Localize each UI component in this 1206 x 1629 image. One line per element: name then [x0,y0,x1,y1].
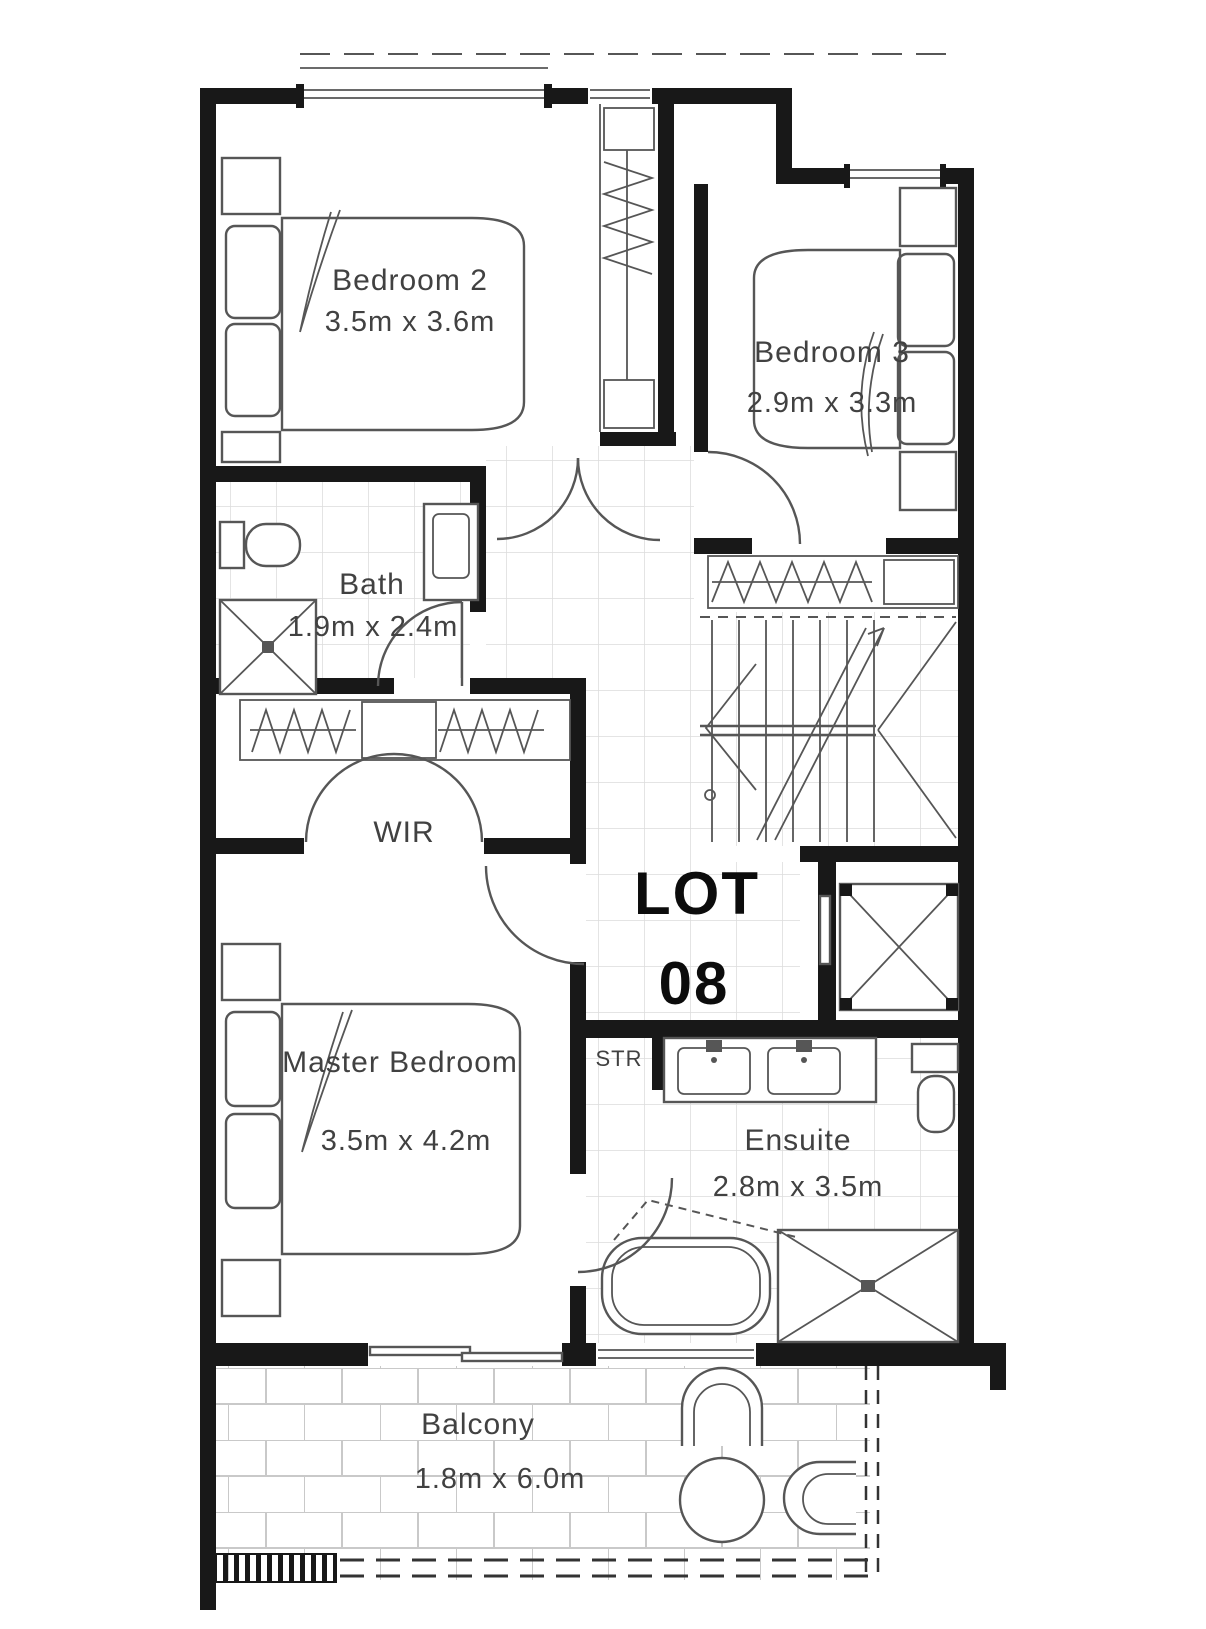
lift-shaft [820,884,958,1010]
balcony-chair [682,1368,762,1446]
nightstand [222,944,280,1000]
nightstand [222,1260,280,1316]
wir-robes [240,700,570,760]
ensuite-dims: 2.8m x 3.5m [713,1171,884,1203]
balustrade [216,1554,336,1582]
lot-label-line2: 08 [659,950,730,1017]
balcony-label: Balcony [421,1408,535,1441]
toilet-bowl [918,1076,954,1132]
door-arc-master [486,866,584,964]
lot-label-line1: LOT [634,860,760,927]
toilet-cistern [912,1044,958,1072]
bedroom3-dims: 2.9m x 3.3m [747,387,918,419]
tap-icon [796,1040,812,1052]
pillow [226,1012,280,1106]
wir-label: WIR [373,816,434,849]
door-arc-bedroom3 [708,452,800,544]
shower-drain-icon [861,1280,875,1292]
hanging-rail-icon [604,162,652,274]
double-vanity [664,1038,876,1102]
master-bedroom-dims: 3.5m x 4.2m [321,1125,492,1157]
linen-closet [600,104,654,432]
lift-cross-icon [840,884,958,1010]
pillow [898,254,954,346]
bathtub [602,1238,770,1334]
pillow [226,1114,280,1208]
stair-store-label: STR [596,1046,643,1071]
bedroom3-label: Bedroom 3 [754,336,910,369]
bedroom2-label: Bedroom 2 [332,264,488,297]
toilet-bowl [246,524,300,566]
balcony-table [680,1458,764,1542]
bedroom3-robe [708,556,958,608]
bath-label: Bath [339,568,405,601]
balcony-chair [784,1462,856,1534]
lift-door [820,896,830,964]
hanging-rail-icon [440,710,538,752]
nightstand [900,188,956,246]
pillow [226,226,280,318]
window-hall-top [588,84,652,108]
bath-dims: 1.9m x 2.4m [288,611,459,643]
eave-lines [300,54,958,68]
balcony-dims: 1.8m x 6.0m [415,1463,586,1495]
sliding-door-master-balcony[interactable] [368,1343,562,1366]
window-bedroom2-top [296,84,552,108]
window-ensuite-balcony [596,1343,756,1366]
nightstand [222,432,280,462]
floor-plan-page: Bedroom 2 3.5m x 3.6m Bedroom 3 2.9m x 3… [0,0,1206,1629]
tap-icon [706,1040,722,1052]
window-bedroom3-top [844,164,946,188]
toilet-cistern [220,522,244,568]
hanging-rail-icon [252,710,350,752]
pillow [226,324,280,416]
ensuite-label: Ensuite [744,1124,851,1157]
bedroom2-dims: 3.5m x 3.6m [325,306,496,338]
floor-plan-drawing: Bedroom 2 3.5m x 3.6m Bedroom 3 2.9m x 3… [0,0,1206,1629]
shower-drain-icon [262,641,274,653]
nightstand [900,452,956,510]
master-bedroom-label: Master Bedroom [282,1046,518,1079]
nightstand [222,158,280,214]
